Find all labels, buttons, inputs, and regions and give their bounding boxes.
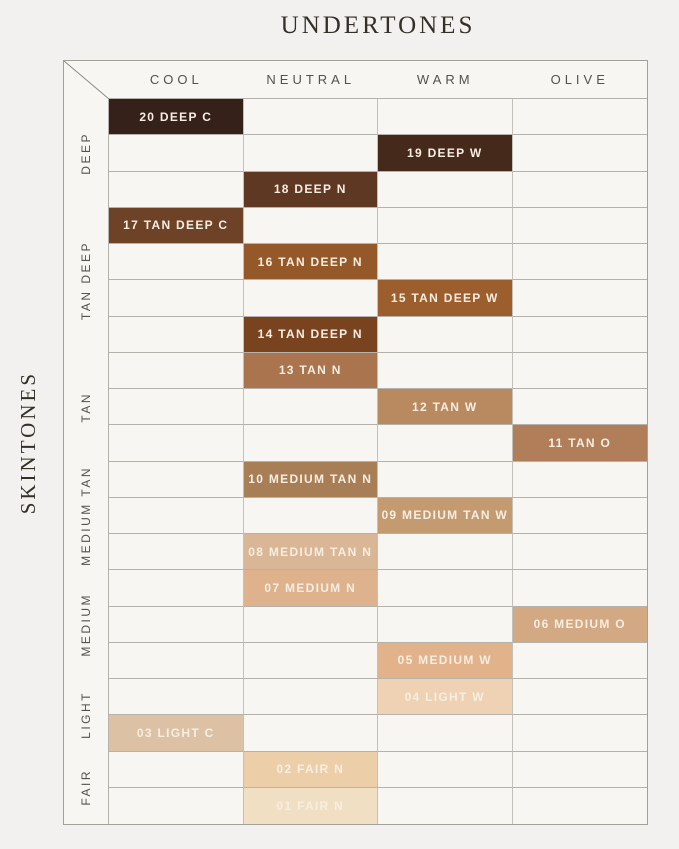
grid-cell <box>513 462 648 498</box>
grid-cell: 11 TAN O <box>513 425 648 461</box>
grid-cell: 16 TAN DEEP N <box>244 244 379 280</box>
grid-cell: 07 MEDIUM N <box>244 570 379 606</box>
shade-swatch: 15 TAN DEEP W <box>378 280 512 315</box>
grid-cell <box>109 317 244 353</box>
grid-cell: 20 DEEP C <box>109 99 244 135</box>
grid-cell <box>244 135 379 171</box>
shade-swatch: 02 FAIR N <box>244 752 378 787</box>
grid-cell <box>378 244 513 280</box>
grid-cell <box>378 317 513 353</box>
grid-cell <box>513 679 648 715</box>
grid-cell <box>378 788 513 824</box>
shade-swatch: 04 LIGHT W <box>378 679 512 714</box>
grid-cell <box>513 280 648 316</box>
grid-cell <box>513 788 648 824</box>
row-group-light: LIGHT <box>64 679 109 752</box>
row-group-label: MEDIUM TAN <box>79 466 93 566</box>
column-header-warm: WARM <box>378 61 513 99</box>
grid-cell <box>109 607 244 643</box>
grid-cell <box>109 389 244 425</box>
grid-cell <box>513 498 648 534</box>
grid-cell: 01 FAIR N <box>244 788 379 824</box>
shade-label: 03 LIGHT C <box>137 726 215 740</box>
shade-label: 15 TAN DEEP W <box>391 291 499 305</box>
grid-cell <box>109 135 244 171</box>
grid-cell: 03 LIGHT C <box>109 715 244 751</box>
grid-cell <box>109 498 244 534</box>
grid-cell <box>109 752 244 788</box>
grid-cell <box>513 752 648 788</box>
row-group-label: MEDIUM <box>79 593 93 657</box>
skintones-title: SKINTONES <box>16 371 41 514</box>
row-group-deep: DEEP <box>64 99 109 208</box>
row-group-tan-deep: TAN DEEP <box>64 208 109 353</box>
grid-cell <box>378 752 513 788</box>
shade-label: 08 MEDIUM TAN N <box>248 545 372 559</box>
shade-label: 06 MEDIUM O <box>534 617 626 631</box>
row-group-medium: MEDIUM <box>64 570 109 679</box>
corner-cell <box>64 61 109 99</box>
shade-label: 12 TAN W <box>412 400 478 414</box>
grid-cell: 19 DEEP W <box>378 135 513 171</box>
shade-swatch: 18 DEEP N <box>244 172 378 207</box>
grid-cell <box>513 244 648 280</box>
grid-cell: 02 FAIR N <box>244 752 379 788</box>
grid-cell <box>244 607 379 643</box>
shade-label: 20 DEEP C <box>139 110 212 124</box>
grid-cell <box>244 99 379 135</box>
grid-cell: 09 MEDIUM TAN W <box>378 498 513 534</box>
grid-cell <box>378 462 513 498</box>
grid-cell <box>378 607 513 643</box>
grid-cell <box>513 172 648 208</box>
grid-cell: 10 MEDIUM TAN N <box>244 462 379 498</box>
shade-swatch: 10 MEDIUM TAN N <box>244 462 378 497</box>
shade-label: 18 DEEP N <box>274 182 347 196</box>
grid-cell <box>513 208 648 244</box>
grid-cell: 18 DEEP N <box>244 172 379 208</box>
grid-cell <box>378 172 513 208</box>
grid-cell <box>378 570 513 606</box>
grid-cell <box>244 389 379 425</box>
shade-swatch: 11 TAN O <box>513 425 648 460</box>
row-group-tan: TAN <box>64 353 109 462</box>
shade-label: 09 MEDIUM TAN W <box>381 508 508 522</box>
column-header-cool: COOL <box>109 61 244 99</box>
grid-cell: 13 TAN N <box>244 353 379 389</box>
shade-label: 01 FAIR N <box>276 799 344 813</box>
row-group-label: TAN <box>79 392 93 423</box>
grid-cell <box>378 99 513 135</box>
shade-swatch: 16 TAN DEEP N <box>244 244 378 279</box>
grid-cell <box>378 208 513 244</box>
column-header-olive: OLIVE <box>513 61 648 99</box>
shade-label: 13 TAN N <box>279 363 342 377</box>
shade-swatch: 06 MEDIUM O <box>513 607 648 642</box>
grid-cell <box>109 643 244 679</box>
grid-cell <box>513 99 648 135</box>
grid-cell: 12 TAN W <box>378 389 513 425</box>
row-group-fair: FAIR <box>64 752 109 825</box>
row-group-medium-tan: MEDIUM TAN <box>64 462 109 571</box>
shade-swatch: 20 DEEP C <box>109 99 243 134</box>
grid-cell: 06 MEDIUM O <box>513 607 648 643</box>
grid-cell <box>109 353 244 389</box>
grid-cell <box>109 570 244 606</box>
shade-label: 04 LIGHT W <box>405 690 485 704</box>
grid-cell <box>109 280 244 316</box>
shade-swatch: 19 DEEP W <box>378 135 512 170</box>
shade-swatch: 17 TAN DEEP C <box>109 208 243 243</box>
row-group-label: DEEP <box>79 132 93 175</box>
grid-cell: 14 TAN DEEP N <box>244 317 379 353</box>
shade-swatch: 09 MEDIUM TAN W <box>378 498 512 533</box>
grid-cell <box>244 280 379 316</box>
grid-cell <box>513 135 648 171</box>
grid-cell <box>378 425 513 461</box>
shade-swatch: 14 TAN DEEP N <box>244 317 378 352</box>
grid-cell <box>244 643 379 679</box>
grid-cell <box>513 353 648 389</box>
grid-cell <box>109 244 244 280</box>
grid-cell <box>244 498 379 534</box>
shade-label: 07 MEDIUM N <box>264 581 356 595</box>
grid-cell: 15 TAN DEEP W <box>378 280 513 316</box>
shade-swatch: 07 MEDIUM N <box>244 570 378 605</box>
shade-swatch: 03 LIGHT C <box>109 715 243 750</box>
grid-cell <box>109 425 244 461</box>
grid-cell <box>109 172 244 208</box>
grid-cell <box>244 425 379 461</box>
shade-label: 10 MEDIUM TAN N <box>248 472 372 486</box>
grid-cell <box>513 317 648 353</box>
row-group-label: LIGHT <box>79 691 93 739</box>
grid-cell <box>109 534 244 570</box>
row-group-label: FAIR <box>79 769 93 806</box>
shade-swatch: 13 TAN N <box>244 353 378 388</box>
shade-chart-page: { "title": "UNDERTONES", "side_title": "… <box>0 0 679 849</box>
shade-label: 05 MEDIUM W <box>398 653 492 667</box>
undertones-title: UNDERTONES <box>108 12 648 40</box>
skintones-title-wrap: SKINTONES <box>8 60 48 825</box>
shade-swatch: 12 TAN W <box>378 389 512 424</box>
row-group-label: TAN DEEP <box>79 241 93 320</box>
grid-cell <box>378 353 513 389</box>
shade-label: 17 TAN DEEP C <box>123 218 228 232</box>
shade-label: 02 FAIR N <box>276 762 344 776</box>
grid-cell: 08 MEDIUM TAN N <box>244 534 379 570</box>
column-header-neutral: NEUTRAL <box>244 61 379 99</box>
grid-cell: 17 TAN DEEP C <box>109 208 244 244</box>
grid-cell <box>109 788 244 824</box>
shade-label: 11 TAN O <box>548 436 611 450</box>
grid-cell <box>513 570 648 606</box>
grid-cell <box>513 643 648 679</box>
grid-cell: 04 LIGHT W <box>378 679 513 715</box>
diagonal-divider-line <box>64 61 109 99</box>
grid-cell <box>109 462 244 498</box>
shade-swatch: 05 MEDIUM W <box>378 643 512 678</box>
grid-cell <box>513 389 648 425</box>
grid-cell <box>378 715 513 751</box>
grid-cell <box>513 534 648 570</box>
grid-cell <box>244 208 379 244</box>
shade-label: 19 DEEP W <box>407 146 483 160</box>
grid-cell <box>244 715 379 751</box>
shade-label: 16 TAN DEEP N <box>258 255 363 269</box>
shade-label: 14 TAN DEEP N <box>258 327 363 341</box>
shade-swatch: 01 FAIR N <box>244 788 378 824</box>
shade-swatch: 08 MEDIUM TAN N <box>244 534 378 569</box>
shade-matrix-table: COOL NEUTRAL WARM OLIVE DEEP TAN DEEP TA… <box>63 60 648 825</box>
grid-cell <box>109 679 244 715</box>
grid-cell: 05 MEDIUM W <box>378 643 513 679</box>
grid-cell <box>513 715 648 751</box>
grid-cell <box>378 534 513 570</box>
grid-cell <box>244 679 379 715</box>
